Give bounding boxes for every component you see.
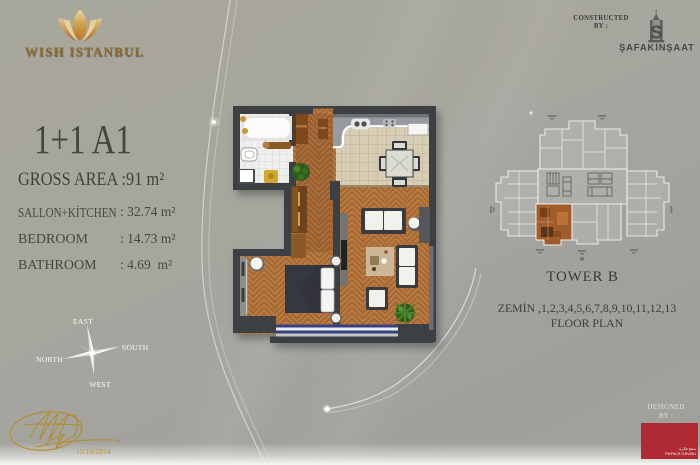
svg-text:WEST: WEST: [89, 380, 111, 389]
svg-text:EAST: EAST: [73, 317, 93, 326]
svg-text:15/10/2014: 15/10/2014: [76, 448, 111, 456]
svg-text:NORTH: NORTH: [36, 355, 63, 364]
svg-text:SOUTH: SOUTH: [122, 343, 149, 352]
svg-text:S: S: [650, 23, 662, 43]
